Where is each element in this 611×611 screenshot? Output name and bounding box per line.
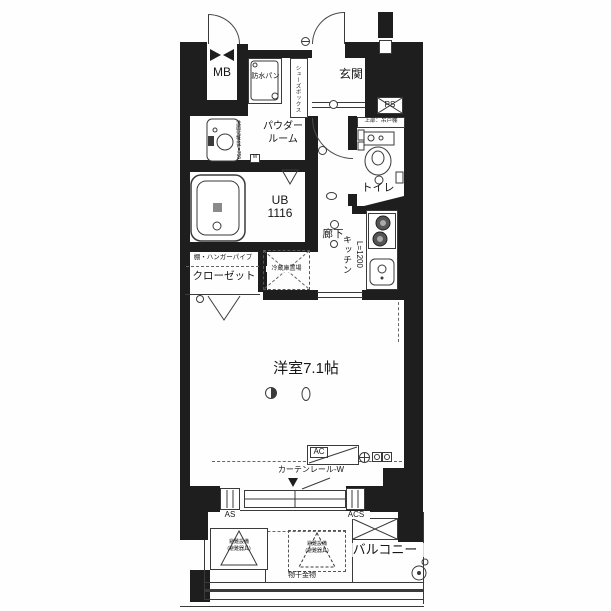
balcony-rail-2 [204, 589, 424, 592]
entry-step-line-1 [312, 102, 365, 103]
evac-label-2b: (避難器具) [290, 549, 344, 554]
kitchen-size-label: L=1200 [355, 226, 363, 282]
room-door-track-2 [317, 297, 363, 298]
hall-symbol-icon-1 [318, 146, 327, 155]
outlet-dot-2 [382, 452, 392, 462]
ub-door-icon [280, 168, 300, 186]
washer-pan-icon [248, 58, 282, 104]
mb-label: MB [207, 66, 237, 79]
pillar-base-box [379, 40, 392, 54]
laundry-hardware-label: 物干金物 [285, 572, 319, 579]
entrance-door-arc [312, 12, 344, 44]
closet-label: クローゼット [189, 271, 259, 282]
balcony-label: バルコニー [346, 543, 424, 557]
wall-bottom-right-2 [398, 512, 423, 542]
hall-symbol-icon-4 [330, 240, 338, 248]
entrance-label: 玄関 [334, 68, 368, 81]
ac-outlet-icon [359, 452, 370, 463]
wall-pillar [378, 12, 393, 38]
entry-step-line-2 [312, 107, 365, 108]
hall-symbol-icon-2 [326, 192, 337, 200]
outlet-dot-1 [372, 452, 382, 462]
window-sashes [244, 490, 346, 508]
wall-right [404, 118, 423, 490]
outer-bottom-line [180, 606, 424, 607]
ps-label: PS [377, 101, 403, 109]
evac-label-2a: 避難設備 [290, 542, 344, 547]
entrance-symbol-icon [301, 37, 310, 46]
entry-step-circle-icon [329, 100, 338, 109]
entrance-door-leaf [344, 12, 345, 44]
kitchen-label: キッチン [342, 230, 351, 280]
toilet-icon [356, 128, 404, 186]
room-door-track-1 [317, 292, 363, 293]
wall-top-washer [237, 50, 312, 58]
balcony-left-edge [204, 540, 205, 600]
stove-icon [368, 213, 396, 249]
sink-icon [369, 258, 395, 286]
toilet-shelf-label: 上部：吊戸棚 [358, 119, 404, 125]
evac-label-1a: 避難設備 [212, 540, 266, 545]
curtain-rail-label: カーテンレール-W [266, 466, 356, 474]
as-label: AS [219, 511, 241, 519]
wall-room-top-1 [263, 290, 318, 300]
main-room-label: 洋室7.1帖 [250, 361, 362, 377]
unit-bath-label-2: 1116 [260, 207, 300, 220]
ac-label: AC [309, 447, 329, 458]
as-vent-lines [220, 488, 240, 510]
closet-shelf-label: 棚・ハンガーパイプ [187, 255, 259, 262]
floor-plan: MB 防水パン シューズボックス 玄関 PS パウダー ルーム 洗面化粧台L=7… [0, 0, 611, 611]
vanity-label: 洗面化粧台L=750 [235, 114, 240, 166]
wall-bottom-left-2 [180, 512, 208, 540]
bathtub-icon [190, 174, 246, 242]
wall-bottom-left-1 [180, 486, 220, 512]
balcony-x-icon [352, 518, 398, 540]
toilet-step-icon [364, 196, 404, 206]
fridge-space-label: 冷蔵庫置場 [266, 266, 307, 272]
balcony-rail-3 [204, 599, 424, 600]
acs-vent-lines [346, 488, 365, 510]
meter-box-icon [209, 48, 235, 62]
balcony-drain-icon [410, 558, 430, 582]
wall-mb-left [190, 42, 207, 102]
window-sill-line [240, 510, 346, 511]
balcony-rail-1 [204, 582, 424, 583]
mixing-valve-label: M [250, 155, 260, 160]
powder-room-label-2: ルーム [262, 135, 304, 146]
waterproof-pan-label: 防水パン [249, 73, 282, 80]
ac-label-box: AC [310, 447, 327, 458]
closet-door-icon [196, 294, 244, 322]
room-light-icon [264, 386, 278, 400]
evac-label-1b: (避難器具) [212, 547, 266, 552]
unit-bath-label-1: UB [262, 194, 298, 207]
acs-label: ACS [342, 511, 370, 519]
toilet-label: トイレ [360, 183, 396, 195]
closet-shelf-line [186, 266, 259, 267]
shoe-box-label: シューズボックス [294, 62, 300, 116]
mb-door-arc [208, 14, 240, 44]
room-light-icon-2 [300, 386, 312, 402]
powder-room-label-1: パウダー [260, 122, 306, 133]
wall-kitchen-right [398, 208, 404, 296]
wall-toilet-left-bottom [348, 194, 357, 206]
beam-dash-line [398, 302, 399, 342]
wall-balcony-post [190, 570, 210, 602]
